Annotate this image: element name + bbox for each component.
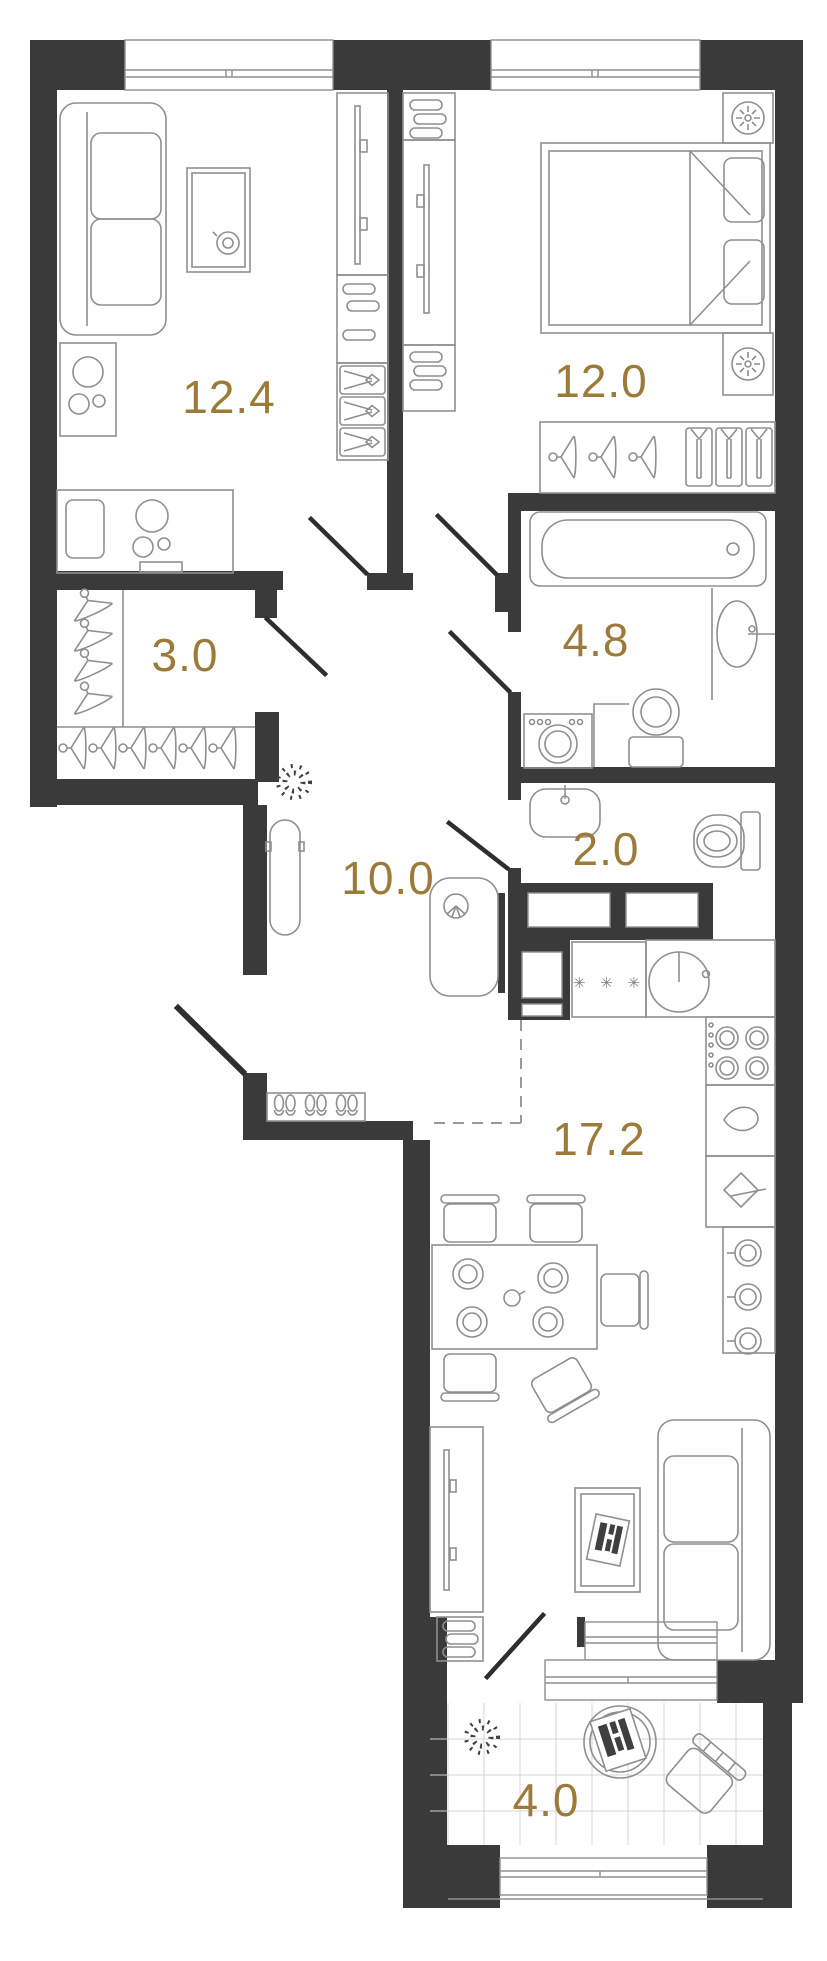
door-bedroom <box>438 516 496 574</box>
plant-stand <box>60 343 116 436</box>
stove <box>706 1017 775 1085</box>
wc-toilet <box>694 812 760 870</box>
hall-armchair <box>430 878 498 996</box>
dining-chair <box>441 1354 499 1401</box>
washing-machine <box>524 714 592 768</box>
zone-boundary-dashed <box>430 1020 521 1123</box>
hall-plant <box>278 766 310 798</box>
nightstand-top <box>723 93 773 143</box>
balcony-plant <box>466 1721 498 1753</box>
dining-chair <box>441 1195 499 1242</box>
door-entry <box>178 1008 243 1072</box>
door-wc <box>449 823 507 868</box>
door-bathroom <box>451 633 509 691</box>
door-balcony <box>487 1615 543 1677</box>
window-bedroom <box>491 40 700 90</box>
nightstand-bottom <box>723 333 773 395</box>
room-label-bedroom: 12.0 <box>554 354 648 408</box>
door-living-room <box>311 519 366 573</box>
room-label-bathroom: 4.8 <box>563 613 630 667</box>
dining-chair <box>527 1195 585 1242</box>
room-label-balcony: 4.0 <box>513 1773 580 1827</box>
room-label-hallway: 10.0 <box>341 851 435 905</box>
floor-plan-drawing: ✳ ✳ ✳ <box>0 0 827 1961</box>
refrigerator-marks: ✳ ✳ ✳ <box>573 974 645 992</box>
sofa <box>60 103 166 335</box>
room-label-wardrobe-room: 3.0 <box>152 628 219 682</box>
desk <box>57 490 233 573</box>
kitchen-cabinet-drop <box>706 1085 775 1156</box>
bathroom-toilet <box>594 689 683 767</box>
tv-wardrobe <box>337 93 388 460</box>
kitchen-cabinet-diamond <box>706 1156 775 1227</box>
ventilation-duct-niches <box>522 893 698 1016</box>
bathtub <box>530 512 766 586</box>
panel <box>498 893 505 993</box>
kitchen-counter-circles <box>723 1227 775 1354</box>
kitchen-sink-counter <box>646 940 775 1017</box>
floor-plan: ✳ ✳ ✳ 12.4 12.0 3.0 4.8 2.0 10.0 17.2 4.… <box>0 0 827 1961</box>
door-wardrobe <box>267 619 325 674</box>
coffee-table <box>187 168 250 272</box>
dining-table <box>432 1245 597 1349</box>
room-label-kitchen-living: 17.2 <box>552 1112 646 1166</box>
doors <box>178 516 543 1677</box>
hall-mirror <box>266 820 304 935</box>
balcony-table <box>584 1706 656 1778</box>
bedroom-shelving-tv <box>403 93 455 411</box>
shoe-shelf <box>267 1093 365 1121</box>
room-label-living-room: 12.4 <box>182 370 276 424</box>
bathroom-sink <box>712 588 775 700</box>
dining-chair <box>527 1354 601 1424</box>
dining-chair <box>601 1271 648 1329</box>
window-living-room <box>125 40 333 90</box>
double-bed <box>541 143 770 333</box>
room-label-wc: 2.0 <box>573 822 640 876</box>
bedroom-wardrobe <box>540 422 775 493</box>
living-coffee-table <box>575 1488 640 1592</box>
